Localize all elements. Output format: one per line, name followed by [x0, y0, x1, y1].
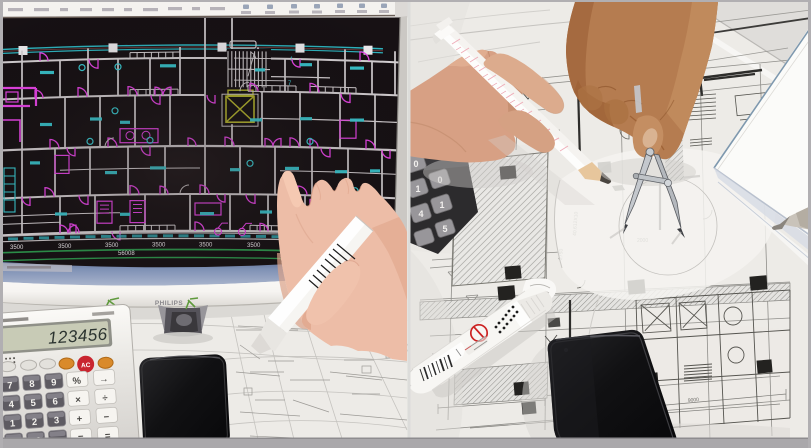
- svg-text:PHILIPS: PHILIPS: [155, 300, 184, 307]
- svg-text:AC: AC: [81, 362, 91, 370]
- svg-text:9: 9: [51, 377, 57, 388]
- svg-text:7: 7: [7, 380, 13, 391]
- svg-text:0: 0: [413, 159, 418, 169]
- svg-text:%: %: [72, 376, 82, 388]
- svg-text:÷: ÷: [102, 393, 108, 404]
- svg-text:1: 1: [415, 184, 420, 194]
- svg-text:1: 1: [439, 200, 444, 210]
- svg-text:5: 5: [442, 224, 447, 234]
- svg-text:8: 8: [29, 379, 35, 390]
- svg-text:4: 4: [418, 209, 423, 219]
- svg-text:9000: 9000: [688, 397, 700, 404]
- svg-text:2: 2: [32, 417, 38, 428]
- svg-text:→: →: [99, 374, 109, 386]
- svg-text:6: 6: [52, 396, 58, 407]
- svg-text:3: 3: [54, 415, 60, 426]
